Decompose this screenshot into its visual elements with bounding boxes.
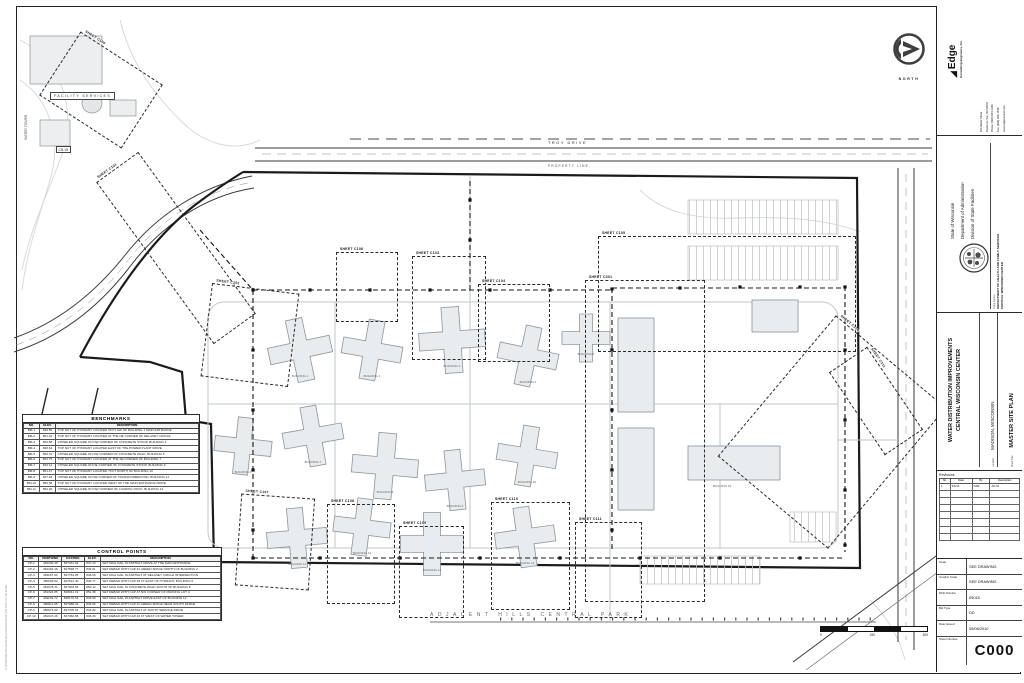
building-label: BUILDING 5	[566, 352, 606, 356]
scale-num-300: 300	[923, 633, 928, 637]
table-row	[940, 505, 1020, 512]
drawing-sheet: NORTH FACILITY SERVICES CB-18 WATER TOWE…	[0, 0, 1024, 683]
building-label: BUILDING 8	[365, 490, 405, 494]
table-row: 13/5/10DABAD #1	[940, 483, 1020, 490]
field-row: Date Issued05/06/2010	[937, 621, 1022, 637]
table-cell	[972, 490, 990, 497]
field-value: DD	[967, 606, 1022, 621]
firm-address: 624 Water StreetPrairie du Sac, WI 53578…	[979, 42, 1007, 132]
sheet-callout-label: SHEET C108	[330, 500, 355, 503]
sheet-callout-label: SHEET C102	[215, 279, 241, 285]
table-row	[940, 497, 1020, 504]
building-label: BUILDING 9	[435, 504, 475, 508]
table-cell	[990, 533, 1020, 540]
state-line2: Department of Administration	[958, 143, 968, 239]
state-lines: State of Wisconsin Department of Adminis…	[948, 143, 978, 239]
building-label: BUILDING 11	[277, 562, 317, 566]
table-cell	[940, 512, 951, 519]
table-row	[940, 526, 1020, 533]
seal-icon	[955, 239, 993, 277]
valve-node	[251, 408, 254, 411]
table-cell	[972, 512, 990, 519]
table-cell	[940, 533, 951, 540]
state-block: State of Wisconsin Department of Adminis…	[943, 139, 1019, 311]
location-value: MADISON, WISCONSIN	[990, 402, 995, 450]
table-leaders	[42, 388, 98, 414]
building-label: BUILDING 1	[280, 374, 320, 378]
table-cell	[940, 490, 951, 497]
scale-bar-segments	[820, 626, 928, 632]
fields-section: ScaleSEE DRAWINGGraphic ScaleSEE DRAWING…	[937, 559, 1022, 672]
table-cell: CP-10	[24, 614, 39, 620]
sheet-title-label: Sheet Title:	[1011, 455, 1014, 467]
table-cell	[950, 526, 972, 533]
scale-num-150: 150	[870, 633, 875, 637]
table-cell: 481047.26	[39, 614, 62, 620]
state-line3: Division of State Facilities	[968, 143, 978, 239]
table-cell	[940, 505, 951, 512]
sheet-callout-label: SHEET C104	[481, 280, 506, 283]
sheet-callout-label: SHEET C103	[415, 252, 440, 255]
table-row	[940, 512, 1020, 519]
table-cell: DAB	[972, 483, 990, 490]
sheet-callout-box: SHEET C107	[235, 494, 315, 591]
building-label: BUILDING 6	[223, 470, 263, 474]
table-cell	[972, 533, 990, 540]
agency-block: Using Agency DEPARTMENT OF HEALTH AND FA…	[990, 143, 1004, 309]
sheet-callout-box: SHEET C110	[491, 502, 570, 610]
fields-rows: ScaleSEE DRAWINGGraphic ScaleSEE DRAWING…	[937, 559, 1022, 637]
sheet-number-label: Sheet Number	[937, 637, 967, 665]
north-arrow: NORTH	[888, 30, 930, 81]
cb-label: CB-18	[56, 146, 71, 153]
sheet-callout-label: SHEET C105	[601, 232, 626, 235]
table-cell	[950, 505, 972, 512]
benchmarks-title: BENCHMARKS	[23, 415, 199, 423]
sheet-number-row: Sheet Number C000	[937, 637, 1022, 665]
table-cell	[972, 505, 990, 512]
valve-node	[478, 556, 481, 559]
valve-node	[308, 288, 311, 291]
table-cell	[950, 497, 972, 504]
revisions-section: Revisions No.DateByDescription 13/5/10DA…	[937, 471, 1022, 559]
valve-node	[843, 543, 846, 546]
table-cell	[950, 490, 972, 497]
revisions-table: No.DateByDescription 13/5/10DABAD #1	[939, 478, 1020, 541]
field-row: ScaleSEE DRAWING	[937, 559, 1022, 575]
graphic-scale-bar: 0 150 300	[820, 626, 928, 637]
control-points-title: CONTROL POINTS	[23, 548, 221, 556]
firm-address-line: www.edgeconsult.com	[1002, 42, 1008, 132]
field-row: Bid TypeDD	[937, 606, 1022, 622]
field-label: Bid Type	[937, 606, 967, 621]
table-cell: SET REBAR WITH CAP 40 FT WEST OF WATER T…	[100, 614, 220, 620]
control-points-table: CONTROL POINTS NO.NORTHINGEASTINGELEV.DE…	[22, 547, 222, 621]
field-label: Date Issued	[937, 621, 967, 636]
project-location: Location: MADISON, WISCONSIN	[979, 313, 999, 467]
firm-block: ◢ Edge Consulting Engineers, Inc. 624 Wa…	[943, 22, 1019, 134]
table-cell	[972, 526, 990, 533]
table-cell: 1	[940, 483, 951, 490]
building-footprint	[212, 415, 275, 478]
table-cell: 827366.88	[62, 614, 84, 620]
table-cell	[950, 512, 972, 519]
project-title-line2: CENTRAL WISCONSIN CENTER	[956, 315, 962, 465]
sheet-callout-label: SHEET C106	[339, 248, 364, 251]
plot-stamp: S:\2009\09015\CAD\SHEETS\C000-MASTER SIT…	[4, 520, 8, 670]
field-value: SEE DRAWING	[967, 575, 1022, 590]
table-cell: 846.39	[84, 614, 100, 620]
sheet-number-value: C000	[967, 637, 1022, 665]
firm-name: Edge	[948, 45, 958, 69]
building-label: BUILDING 2	[352, 374, 392, 378]
park-label: ADJACENT HILLS CENTRAL PARK	[430, 612, 632, 618]
table-cell	[990, 512, 1020, 519]
firm-tagline: Consulting Engineers, Inc.	[959, 26, 963, 78]
table-cell	[972, 519, 990, 526]
scale-num-0: 0	[820, 633, 822, 637]
table-row	[940, 533, 1020, 540]
table-cell: 852.26	[39, 487, 55, 493]
table-row	[940, 490, 1020, 497]
valve-node	[468, 238, 471, 241]
sheet-callout-label: SHEET C109	[402, 522, 427, 525]
table-cell: BM-11	[24, 487, 40, 493]
location-label: Location:	[992, 457, 995, 467]
project-block: WATER DISTRIBUTION IMPROVEMENTS CENTRAL …	[943, 311, 1019, 469]
sheet-callout-label: SHEET C110	[494, 498, 519, 501]
property-line-label: PROPERTY LINE	[548, 164, 589, 168]
sheet-callout-label: SHEET C301	[588, 276, 613, 279]
valve-node	[718, 556, 721, 559]
edge-logo-icon: ◢	[949, 71, 958, 78]
project-sheet-title: Sheet Title: MASTER SITE PLAN	[997, 313, 1018, 467]
field-label: Graphic Scale	[937, 575, 967, 590]
benchmarks-table: BENCHMARKS NO.ELEV.DESCRIPTION BM-1849.5…	[22, 414, 200, 494]
project-title: WATER DISTRIBUTION IMPROVEMENTS CENTRAL …	[948, 315, 962, 465]
table-cell	[950, 533, 972, 540]
valve-node	[318, 556, 321, 559]
table-cell	[940, 519, 951, 526]
field-label: Scale	[937, 559, 967, 574]
north-label: NORTH	[888, 77, 930, 81]
building-label: BUILDING 10	[507, 480, 547, 484]
agency-line2: CENTRAL WISCONSIN CENTER	[1000, 143, 1004, 309]
sheet-callout-box: SHEET C301	[585, 280, 705, 602]
state-line1: State of Wisconsin	[948, 143, 958, 239]
table-row	[940, 519, 1020, 526]
table-cell	[940, 497, 951, 504]
sheet-callout-box: SHEET C106	[336, 252, 398, 322]
table-cell	[990, 490, 1020, 497]
building-label: BUILDING 14	[505, 561, 545, 565]
water-tower-label: WATER TOWER	[24, 100, 28, 140]
sheet-title-value: MASTER SITE PLAN	[1009, 393, 1015, 447]
table-row: BM-11852.26CHISELED SQUARE ON NW CORNER …	[24, 487, 199, 493]
field-row: DFD Number09015	[937, 590, 1022, 606]
table-cell: AD #1	[990, 483, 1020, 490]
valve-node	[798, 556, 801, 559]
sheet-callout-box: SHEET C104	[478, 284, 550, 362]
north-arrow-icon	[888, 30, 930, 72]
field-value: 05/06/2010	[967, 621, 1022, 636]
field-value: 09015	[967, 590, 1022, 605]
sheet-callout-box: SHEET C102	[201, 283, 300, 387]
field-value: SEE DRAWING	[967, 559, 1022, 574]
field-label: DFD Number	[937, 590, 967, 605]
table-cell: 3/5/10	[950, 483, 972, 490]
table-cell	[990, 519, 1020, 526]
title-block: ◢ Edge Consulting Engineers, Inc. 624 Wa…	[936, 6, 1022, 672]
building-label: BUILDING 13	[412, 568, 452, 572]
table-cell	[990, 505, 1020, 512]
table-row: CP-10481047.26827366.88846.39SET REBAR W…	[24, 614, 221, 620]
table-cell	[990, 497, 1020, 504]
table-cell	[950, 519, 972, 526]
sheet-callout-label: SHEET C107	[244, 490, 270, 495]
building-label: BUILDING 4	[508, 380, 548, 384]
building-label: BUILDING 7	[293, 460, 333, 464]
field-row: Graphic ScaleSEE DRAWING	[937, 575, 1022, 591]
valve-node	[468, 198, 471, 201]
firm-logo: ◢ Edge Consulting Engineers, Inc.	[948, 26, 963, 78]
table-cell	[972, 497, 990, 504]
road-name-label: TROY DRIVE	[548, 141, 587, 145]
building-label: BUILDING 15	[702, 484, 742, 488]
table-cell	[990, 526, 1020, 533]
table-cell: CHISELED SQUARE ON NW CORNER OF LOADING …	[56, 487, 199, 493]
project-title-line1: WATER DISTRIBUTION IMPROVEMENTS	[948, 315, 954, 465]
table-cell	[940, 526, 951, 533]
facility-services-label: FACILITY SERVICES	[50, 92, 115, 100]
sheet-callout-box: SHEET C109	[399, 526, 464, 618]
sheet-callout-box: SHEET C103	[412, 256, 486, 360]
building-label: BUILDING 3	[432, 364, 472, 368]
building-label: BUILDING 12	[342, 551, 382, 555]
